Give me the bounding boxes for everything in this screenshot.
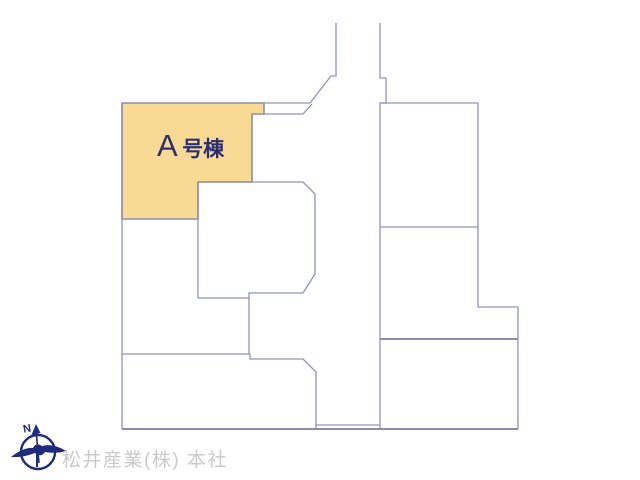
compass-north-label: N [22,423,32,436]
site-plan-canvas: A 号棟 N 松井産業(株) 本社 [0,0,640,480]
lot-a-label-prefix: A [157,128,178,163]
company-watermark: 松井産業(株) 本社 [62,449,228,471]
boundary-right-lots [380,103,518,429]
boundary-road-right [380,23,386,429]
boundary-central-lot [198,182,315,298]
boundary-road-left [264,23,336,103]
boundary-bottom-left-lot [122,354,316,429]
lot-a-label-suffix: 号棟 [182,137,225,161]
boundary-lane-bottom [264,104,312,114]
compass-needle-arrowhead [32,424,41,435]
lot-a-highlight [122,103,264,219]
compass-icon: N [11,423,66,469]
